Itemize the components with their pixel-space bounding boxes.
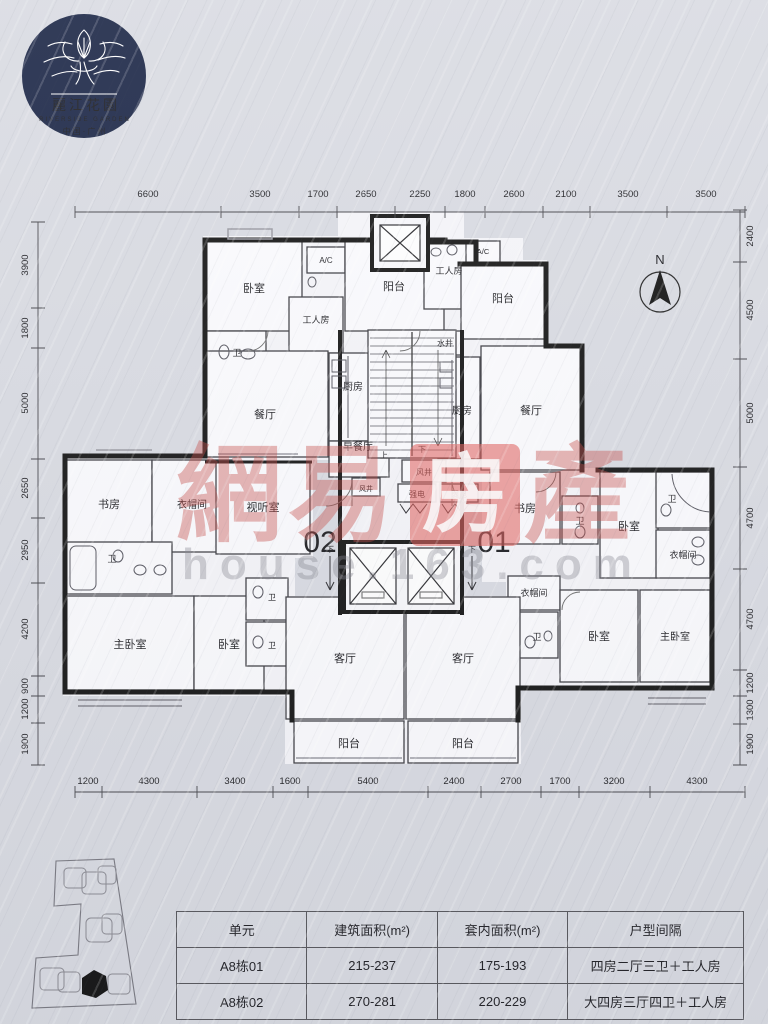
dim-bottom: 4300 [138, 776, 159, 787]
col-header-unit: 单元 [177, 912, 307, 948]
room-label-wind-well: 风井 [416, 467, 432, 477]
room-label-bedroom: 卧室 [218, 637, 240, 651]
dim-bottom: 1200 [77, 776, 98, 787]
room-label-balcony: 阳台 [383, 279, 405, 293]
room-label-breakfast: 早餐厅 [343, 440, 373, 453]
dim-top: 6600 [137, 189, 158, 200]
room-label-strong-elec: 强电 [409, 489, 425, 499]
room-label-bath: 卫 [667, 494, 676, 504]
room-label-water-well: 水井 [437, 338, 453, 348]
dim-bottom: 1700 [549, 776, 570, 787]
room-label-study: 书房 [514, 502, 536, 515]
building-clusters [40, 866, 130, 994]
dim-top: 3500 [695, 189, 716, 200]
room-label-balcony: 阳台 [338, 736, 360, 750]
room-label-study: 书房 [98, 498, 120, 511]
compass-needle-icon [649, 270, 671, 305]
room-label-worker: 工人房 [435, 265, 462, 276]
room-label-cloak: 衣帽间 [669, 549, 696, 560]
dim-left: 900 [20, 678, 31, 694]
dim-right: 4700 [745, 507, 756, 528]
room-label-wind-well: 风井 [359, 484, 373, 493]
dim-left: 5000 [20, 392, 31, 413]
room-label-balcony: 阳台 [452, 736, 474, 750]
dim-bottom: 5400 [357, 776, 378, 787]
room-label-bath: 卫 [107, 554, 116, 564]
dim-left: 2950 [20, 539, 31, 560]
logo-name-en: RIVERSIDE GARDEN [39, 117, 131, 123]
unit-info-table: 单元 建筑面积(m²) 套内面积(m²) 户型间隔 A8栋01 215-237 … [176, 911, 744, 1020]
dim-top: 3500 [249, 189, 270, 200]
room-label-bedroom: 卧室 [618, 519, 640, 533]
dim-top: 2250 [409, 189, 430, 200]
north-compass: N [640, 252, 680, 312]
room-label-bath: 卫 [575, 516, 584, 526]
room-label-master: 主卧室 [114, 637, 147, 651]
dim-left: 3900 [20, 254, 31, 275]
compass-north-label: N [655, 252, 664, 267]
highlighted-building [82, 970, 108, 998]
dim-top: 2100 [555, 189, 576, 200]
developer-logo: 麗江花園 RIVERSIDE GARDEN 中国·广州 [18, 10, 154, 146]
room-label-cloak: 衣帽间 [520, 587, 547, 598]
dim-right: 1200 [745, 672, 756, 693]
room-label-ac: A/C [477, 247, 490, 256]
cell-net-area: 175-193 [437, 948, 567, 984]
room-label-bedroom: 卧室 [588, 629, 610, 643]
dim-left: 1200 [20, 698, 31, 719]
logo-name-cn: 麗江花園 [52, 97, 120, 113]
room-label-worker: 工人房 [302, 314, 329, 325]
room-label-kitchen: 厨房 [343, 380, 363, 393]
dim-top: 2600 [503, 189, 524, 200]
stairs-down-label: 下 [418, 445, 426, 454]
dim-right: 5000 [745, 402, 756, 423]
room-label-kitchen: 厨房 [452, 404, 472, 417]
cell-layout: 四房二厅三卫＋工人房 [568, 948, 744, 984]
dim-top: 3500 [617, 189, 638, 200]
room-label-weak-elec: 弱电 [451, 489, 467, 499]
cell-net-area: 220-229 [437, 984, 567, 1020]
room-label-living: 客厅 [452, 651, 474, 665]
dim-top: 1800 [454, 189, 475, 200]
room-label-dining: 餐厅 [520, 403, 542, 417]
room-label-bedroom: 卧室 [243, 281, 265, 295]
dim-bottom: 3400 [224, 776, 245, 787]
dim-right: 2400 [745, 225, 756, 246]
dim-right: 1300 [745, 699, 756, 720]
table-row: A8栋02 270-281 220-229 大四房三厅四卫＋工人房 [177, 984, 744, 1020]
room-label-bath: 卫 [532, 632, 541, 642]
room-label-bath: 卫 [268, 641, 276, 650]
cell-gross-area: 215-237 [307, 948, 437, 984]
dim-right: 4700 [745, 608, 756, 629]
dim-bottom: 2700 [500, 776, 521, 787]
room-label-bath: 卫 [268, 593, 276, 602]
unit-number-02: 02 [303, 526, 336, 559]
dim-top: 2650 [355, 189, 376, 200]
room-label-living: 客厅 [334, 651, 356, 665]
dim-left: 4200 [20, 618, 31, 639]
dim-bottom: 4300 [686, 776, 707, 787]
col-header-layout: 户型间隔 [568, 912, 744, 948]
dim-left: 1900 [20, 733, 31, 754]
room-label-av: 视听室 [247, 500, 280, 514]
col-header-gross-area: 建筑面积(m²) [307, 912, 437, 948]
room-label-ac: A/C [319, 256, 333, 265]
cell-unit: A8栋01 [177, 948, 307, 984]
dim-right: 1900 [745, 733, 756, 754]
table-header-row: 单元 建筑面积(m²) 套内面积(m²) 户型间隔 [177, 912, 744, 948]
dim-top: 1700 [307, 189, 328, 200]
room-label-bath: 卫 [232, 348, 241, 358]
room-label-master: 主卧室 [660, 630, 690, 643]
dim-left: 2650 [20, 477, 31, 498]
room-label-dining: 餐厅 [254, 407, 276, 421]
col-header-net-area: 套内面积(m²) [437, 912, 567, 948]
cell-gross-area: 270-281 [307, 984, 437, 1020]
core-down-label: 下 [468, 545, 476, 554]
cell-layout: 大四房三厅四卫＋工人房 [568, 984, 744, 1020]
room-label-cloak: 衣帽间 [177, 498, 207, 511]
cell-unit: A8栋02 [177, 984, 307, 1020]
room-label-balcony: 阳台 [492, 291, 514, 305]
dim-bottom: 1600 [279, 776, 300, 787]
dim-bottom: 3200 [603, 776, 624, 787]
stairs-up-label: 上 [380, 451, 388, 460]
dim-bottom: 2400 [443, 776, 464, 787]
table-row: A8栋01 215-237 175-193 四房二厅三卫＋工人房 [177, 948, 744, 984]
dim-right: 4500 [745, 299, 756, 320]
site-map [24, 856, 160, 1020]
logo-location: 中国·广州 [63, 126, 108, 136]
unit-number-01: 01 [477, 526, 510, 559]
dim-left: 1800 [20, 317, 31, 338]
